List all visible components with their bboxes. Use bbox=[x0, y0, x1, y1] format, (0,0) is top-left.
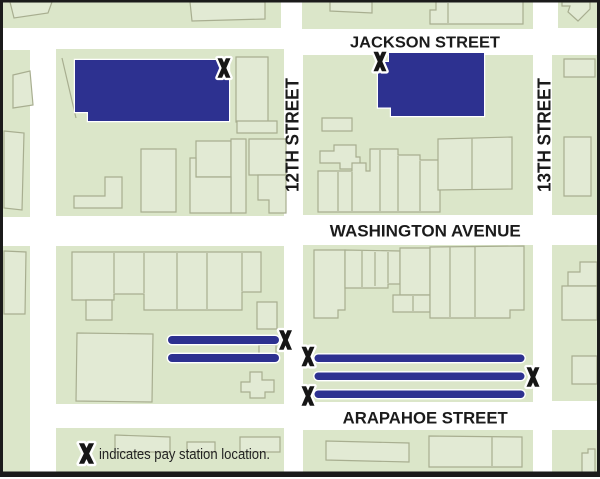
svg-text:indicates pay station location: indicates pay station location. bbox=[99, 446, 270, 463]
svg-text:13TH STREET: 13TH STREET bbox=[534, 77, 555, 192]
svg-text:WASHINGTON AVENUE: WASHINGTON AVENUE bbox=[330, 223, 521, 241]
svg-text:12TH STREET: 12TH STREET bbox=[282, 77, 303, 192]
svg-text:JACKSON STREET: JACKSON STREET bbox=[350, 35, 501, 52]
svg-text:ARAPAHOE STREET: ARAPAHOE STREET bbox=[343, 410, 508, 428]
